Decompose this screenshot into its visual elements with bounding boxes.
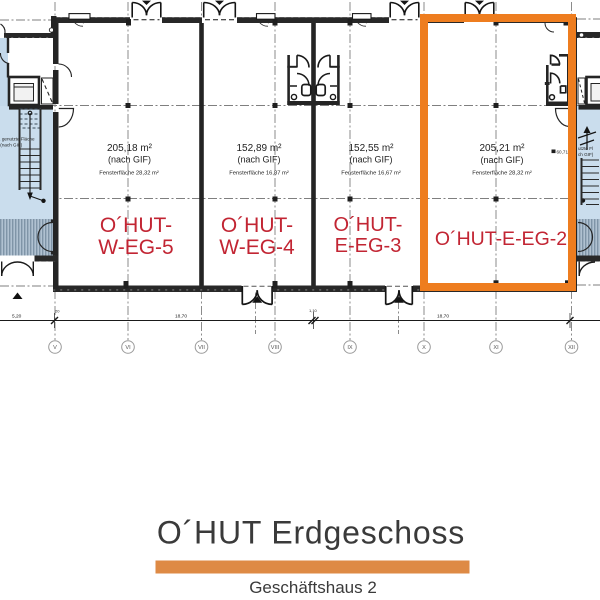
svg-text:Fensterfläche 28,32 m²: Fensterfläche 28,32 m²: [99, 171, 159, 177]
svg-text:(nach GIF): (nach GIF): [480, 155, 523, 165]
svg-text:Fensterfläche 16,67 m²: Fensterfläche 16,67 m²: [341, 171, 401, 177]
svg-text:utzte Fl: utzte Fl: [578, 146, 593, 151]
svg-text:IX: IX: [347, 345, 353, 351]
svg-text:XI: XI: [493, 345, 499, 351]
svg-text:O´HUT Erdgeschoss: O´HUT Erdgeschoss: [157, 515, 465, 551]
svg-text:VIII: VIII: [271, 345, 280, 351]
svg-text:XII: XII: [568, 345, 575, 351]
svg-text:18,70: 18,70: [437, 314, 449, 320]
svg-text:O´HUT-: O´HUT-: [221, 214, 293, 237]
svg-text:O´HUT-: O´HUT-: [100, 214, 172, 237]
svg-text:VI: VI: [125, 345, 131, 351]
svg-text:(nach GIF): (nach GIF): [237, 155, 280, 165]
svg-text:W-EG-5: W-EG-5: [98, 236, 173, 259]
svg-text:18,70: 18,70: [175, 314, 187, 320]
svg-text:205,18 m²: 205,18 m²: [107, 143, 153, 154]
svg-text:W-EG-4: W-EG-4: [219, 236, 295, 259]
svg-text:152,55 m²: 152,55 m²: [348, 143, 394, 154]
svg-text:205,21 m²: 205,21 m²: [479, 143, 525, 154]
svg-text:(nach GIF): (nach GIF): [349, 155, 392, 165]
svg-text:152,89 m²: 152,89 m²: [236, 143, 282, 154]
svg-text:VII: VII: [198, 345, 205, 351]
svg-text:Geschäftshaus 2: Geschäftshaus 2: [249, 578, 377, 597]
svg-text:O´HUT-: O´HUT-: [334, 214, 403, 236]
svg-text:E-EG-3: E-EG-3: [335, 235, 402, 257]
svg-text:Fensterfläche 28,32 m²: Fensterfläche 28,32 m²: [472, 171, 532, 177]
svg-text:X: X: [422, 345, 426, 351]
svg-text:O´HUT-E-EG-2: O´HUT-E-EG-2: [435, 228, 567, 250]
svg-text:V: V: [53, 345, 57, 351]
svg-text:(nach GIF): (nach GIF): [108, 155, 151, 165]
svg-text:20: 20: [55, 309, 60, 314]
svg-text:Fensterfläche 16,87 m²: Fensterfläche 16,87 m²: [229, 171, 289, 177]
svg-text:1,10: 1,10: [309, 308, 318, 313]
svg-text:5,20: 5,20: [12, 314, 22, 320]
svg-text:ch GIF): ch GIF): [578, 152, 594, 157]
